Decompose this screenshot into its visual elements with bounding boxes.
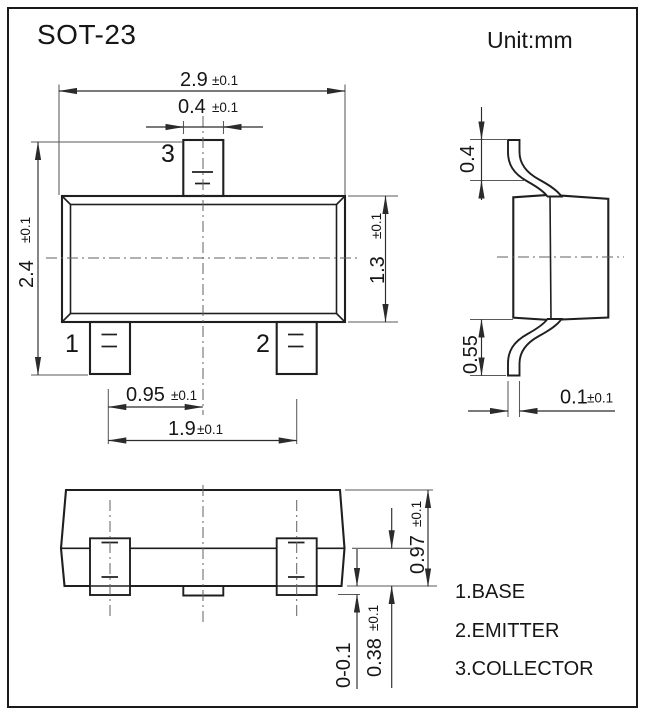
legend-item-emitter: 2.EMITTER: [455, 620, 559, 642]
pin2-number: 2: [256, 330, 270, 358]
dim-pin3-width: 0.4 ±0.1: [146, 96, 263, 134]
dim-body-height: 1.3 ±0.1: [348, 196, 398, 322]
dim-tolerance: ±0.1: [171, 388, 197, 403]
pin3-number: 3: [161, 140, 175, 168]
dim-lead-thickness: 0.1 ±0.1: [468, 381, 615, 417]
profile-view: 0.97 ±0.1 0.38 ±0.1 0-0.1: [61, 485, 437, 689]
datasheet-page: SOT-23 Unit:mm 3 1 2: [0, 0, 645, 715]
dim-value: 0.38: [364, 638, 386, 677]
dim-tolerance: ±0.1: [587, 391, 613, 406]
dim-tolerance: ±0.1: [18, 217, 33, 243]
front-view: 3 1 2 2.9 ±0.1 0.4 ±0.1 2.4 ±0.1: [16, 69, 398, 444]
dim-tolerance: ±0.1: [212, 100, 238, 115]
mold-parting-line: [550, 195, 551, 320]
unit-label: Unit:mm: [487, 27, 573, 53]
pin1-lead: [90, 322, 130, 374]
side-view: 0.4 0.55 0.1 ±0.1: [457, 107, 624, 417]
bottom-gull-wing-lead: [508, 319, 562, 376]
dim-value: 0.95: [126, 384, 165, 406]
dim-value: 0.4: [178, 96, 206, 118]
legend-item-collector: 3.COLLECTOR: [455, 658, 594, 680]
legend-item-base: 1.BASE: [455, 581, 525, 603]
dim-value: 1.9: [168, 418, 196, 440]
dim-value: 0.55: [460, 335, 482, 374]
dim-value: 2.4: [16, 260, 38, 288]
dim-tolerance: ±0.1: [366, 605, 381, 631]
pin-legend: 1.BASE 2.EMITTER 3.COLLECTOR: [455, 581, 594, 680]
dim-lead-bottom-height: 0.55: [460, 320, 513, 376]
pin1-number: 1: [65, 330, 79, 358]
dim-value: 2.9: [180, 69, 208, 91]
dim-tolerance: ±0.1: [369, 213, 384, 239]
dim-base-height: 0.38 ±0.1: [352, 508, 415, 688]
dim-value: 0.4: [457, 145, 479, 173]
top-gull-wing-lead: [508, 140, 562, 197]
dim-tolerance: ±0.1: [409, 501, 424, 527]
dim-value: 0.1: [560, 387, 588, 409]
sot23-package-drawing: SOT-23 Unit:mm 3 1 2: [0, 0, 645, 715]
page-title: SOT-23: [37, 19, 136, 50]
pin2-lead: [277, 322, 317, 374]
dim-value: 1.3: [367, 256, 389, 284]
dim-profile-height: 0.97 ±0.1: [345, 490, 437, 587]
dim-tolerance: ±0.1: [197, 422, 223, 437]
dim-value: 0-0.1: [333, 642, 355, 688]
dim-tolerance: ±0.1: [212, 73, 238, 88]
dim-value: 0.97: [407, 535, 429, 574]
